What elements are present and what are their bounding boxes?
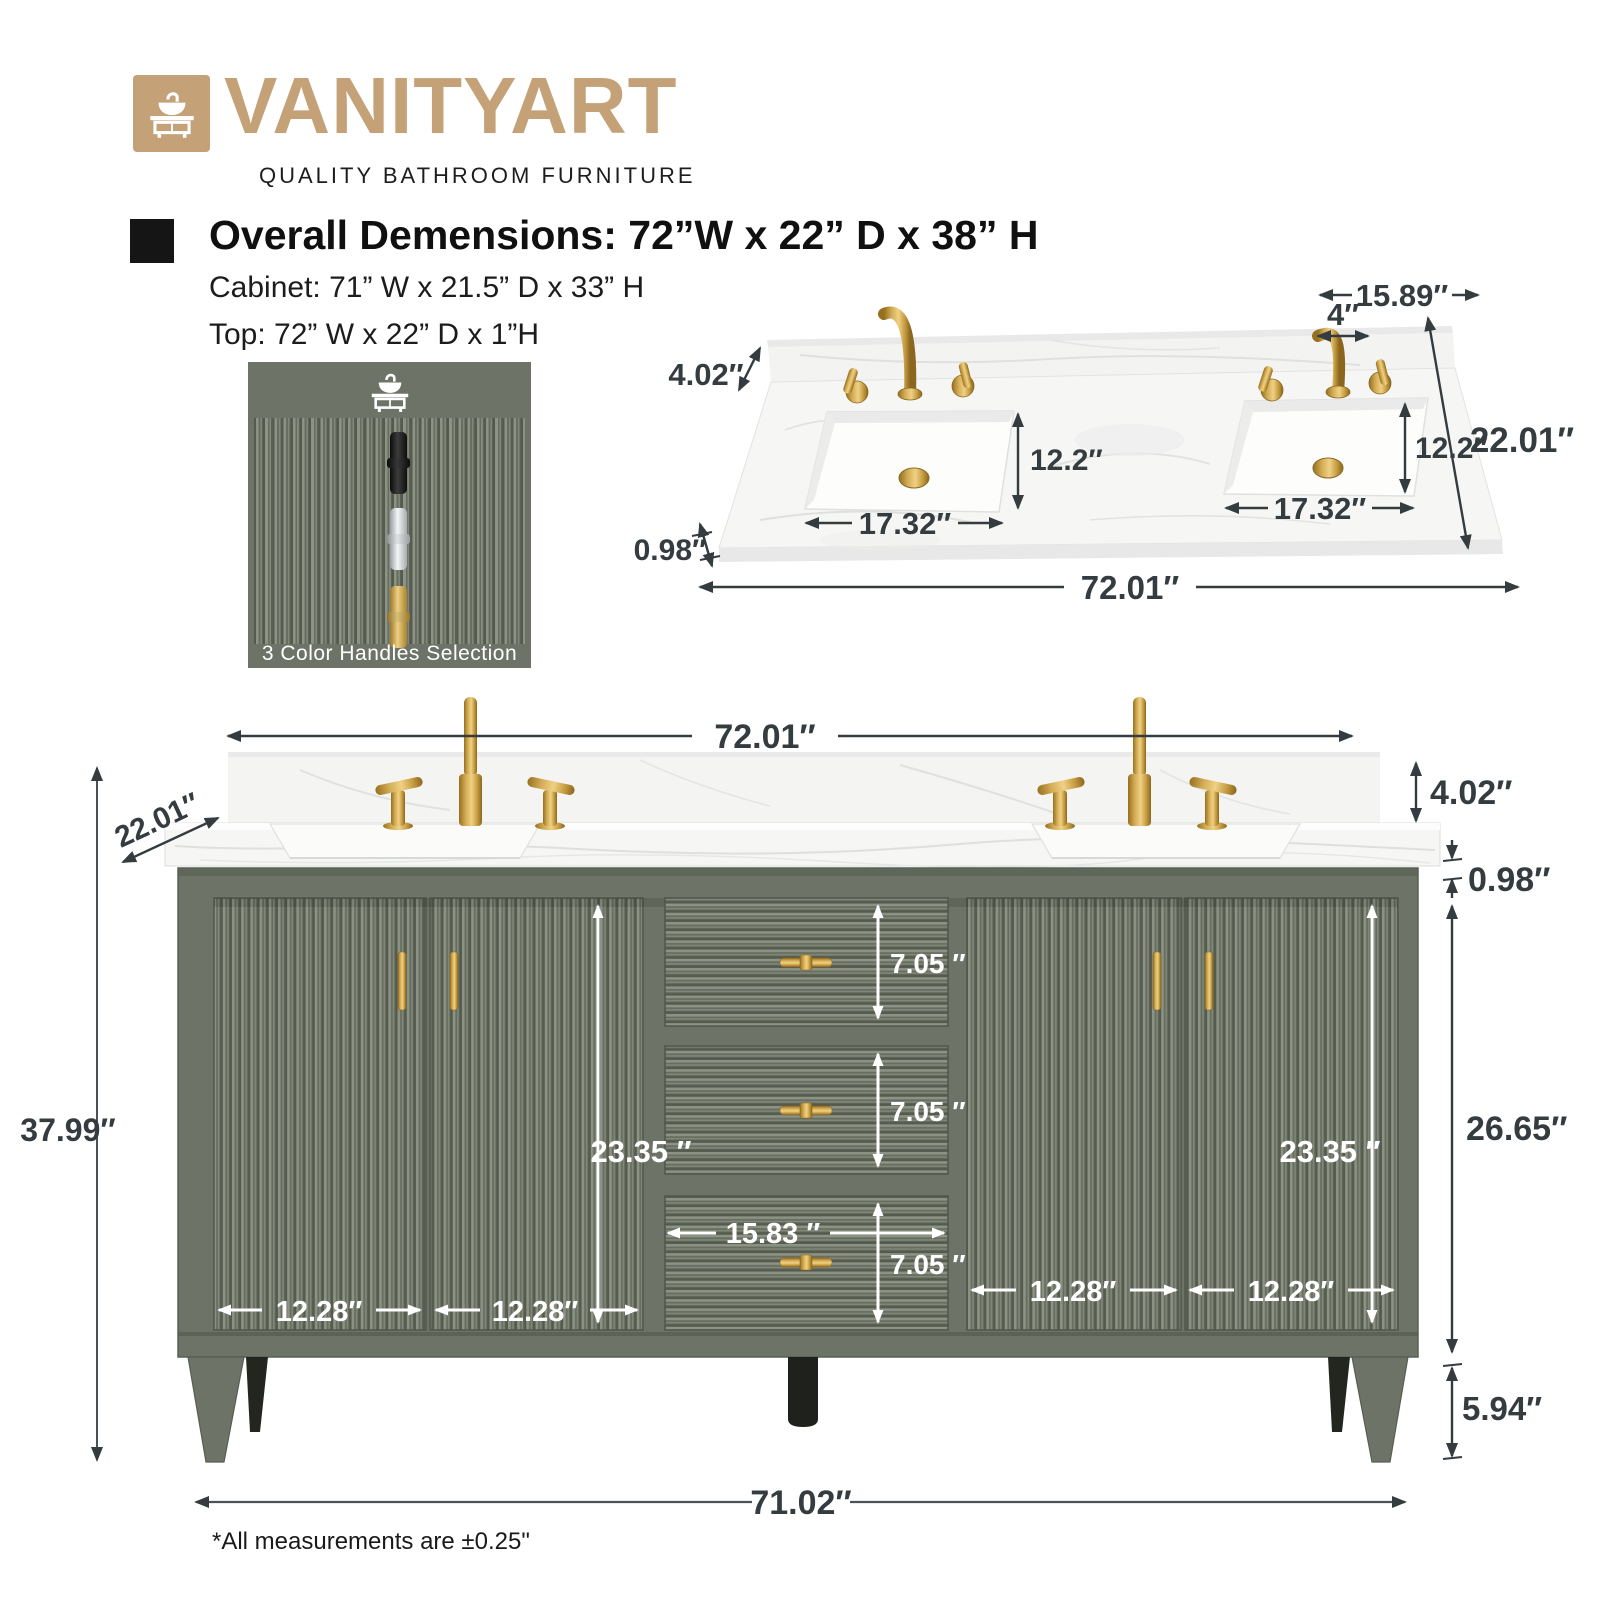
door-handle-3: [1153, 952, 1161, 1010]
leg-center-support: [788, 1357, 818, 1427]
dim-drawer-height-2: 7.05 ″: [890, 1096, 966, 1127]
dim-front-counter-width: 72.01″: [714, 718, 815, 756]
handle-option-chrome: [390, 508, 407, 570]
dim-door-height-right: 23.35 ″: [1279, 1134, 1380, 1169]
door-right-2: [1185, 898, 1398, 1330]
dim-front-counter-thickness: 0.98″: [1468, 861, 1550, 899]
door-handle-4: [1205, 952, 1213, 1010]
dim-sink-depth-left: 12.2″: [1030, 444, 1103, 477]
handle-option-gold: [390, 586, 407, 648]
leg-front-right: [1352, 1357, 1408, 1462]
dim-door-height-left: 23.35 ″: [590, 1134, 691, 1169]
door-left-2: [430, 898, 643, 1330]
dim-counter-depth: 22.01″: [1470, 421, 1575, 460]
dim-door-width-2: 12.28″: [492, 1296, 579, 1328]
spec-top-dimensions: Top: 72” W x 22” D x 1”H: [209, 318, 539, 352]
top-view-sink-right: [1224, 398, 1428, 496]
dim-cabinet-height: 26.65″: [1466, 1110, 1567, 1148]
handle-option-black: [390, 432, 407, 494]
brand-logo-icon: [133, 75, 210, 152]
spec-sheet: VANITYART QUALITY BATHROOM FURNITURE Ove…: [0, 0, 1600, 1600]
door-right-1: [967, 898, 1181, 1330]
door-left-1: [214, 898, 426, 1330]
dim-total-height: 37.99″: [20, 1112, 115, 1148]
vanity-front-view: 72.01″ 22.01″ 37.99″ 4.02″ 0.98″ 26.65″ …: [0, 640, 1600, 1600]
leg-back-right: [1328, 1357, 1350, 1432]
door-handle-2: [450, 952, 458, 1010]
dim-backsplash-height: 4.02″: [668, 357, 743, 392]
leg-front-left: [188, 1357, 244, 1462]
front-sink-right: [1032, 824, 1300, 858]
dim-drawer-height-3: 7.05 ″: [890, 1249, 966, 1280]
spec-cabinet-dimensions: Cabinet: 71” W x 21.5” D x 33” H: [209, 271, 644, 305]
dim-sink-width-left: 17.32″: [859, 506, 952, 541]
dim-front-backsplash-height: 4.02″: [1430, 774, 1512, 812]
spec-bullet-square: [130, 219, 174, 263]
brand-name: VANITYART: [224, 62, 678, 150]
door-handle-1: [398, 952, 406, 1010]
cabinet-legs: [188, 1357, 1408, 1462]
swatch-vanity-icon: [364, 372, 416, 412]
top-view-sink-left: [805, 411, 1014, 512]
dim-sink-width-right: 17.32″: [1274, 491, 1367, 526]
dim-drawer-width: 15.83 ″: [726, 1218, 821, 1250]
dim-cabinet-width: 71.02″: [750, 1484, 851, 1522]
dim-door-width-3: 12.28″: [1030, 1276, 1117, 1308]
dim-back-right-width: 15.89″: [1356, 278, 1449, 313]
countertop-top-view: 15.89″ 4″ 4.02″ 12.2″ 12.2″ 22.01″ 17.32…: [630, 260, 1600, 620]
spec-overall-dimensions: Overall Demensions: 72”W x 22” D x 38” H: [209, 212, 1038, 259]
dim-door-width-1: 12.28″: [276, 1296, 363, 1328]
measurement-tolerance-note: *All measurements are ±0.25": [212, 1528, 530, 1556]
dim-counter-thickness: 0.98″: [634, 534, 707, 567]
dim-leg-height: 5.94″: [1462, 1390, 1542, 1427]
handle-selection-swatch: 3 Color Handles Selection: [248, 362, 531, 668]
vanity-icon: [150, 93, 193, 137]
leg-back-left: [246, 1357, 268, 1432]
dim-door-width-4: 12.28″: [1248, 1276, 1335, 1308]
dim-faucet-width: 4″: [1327, 297, 1359, 332]
brand-tagline: QUALITY BATHROOM FURNITURE: [259, 163, 696, 189]
dim-counter-width: 72.01″: [1081, 569, 1180, 606]
dim-drawer-height-1: 7.05 ″: [890, 948, 966, 979]
